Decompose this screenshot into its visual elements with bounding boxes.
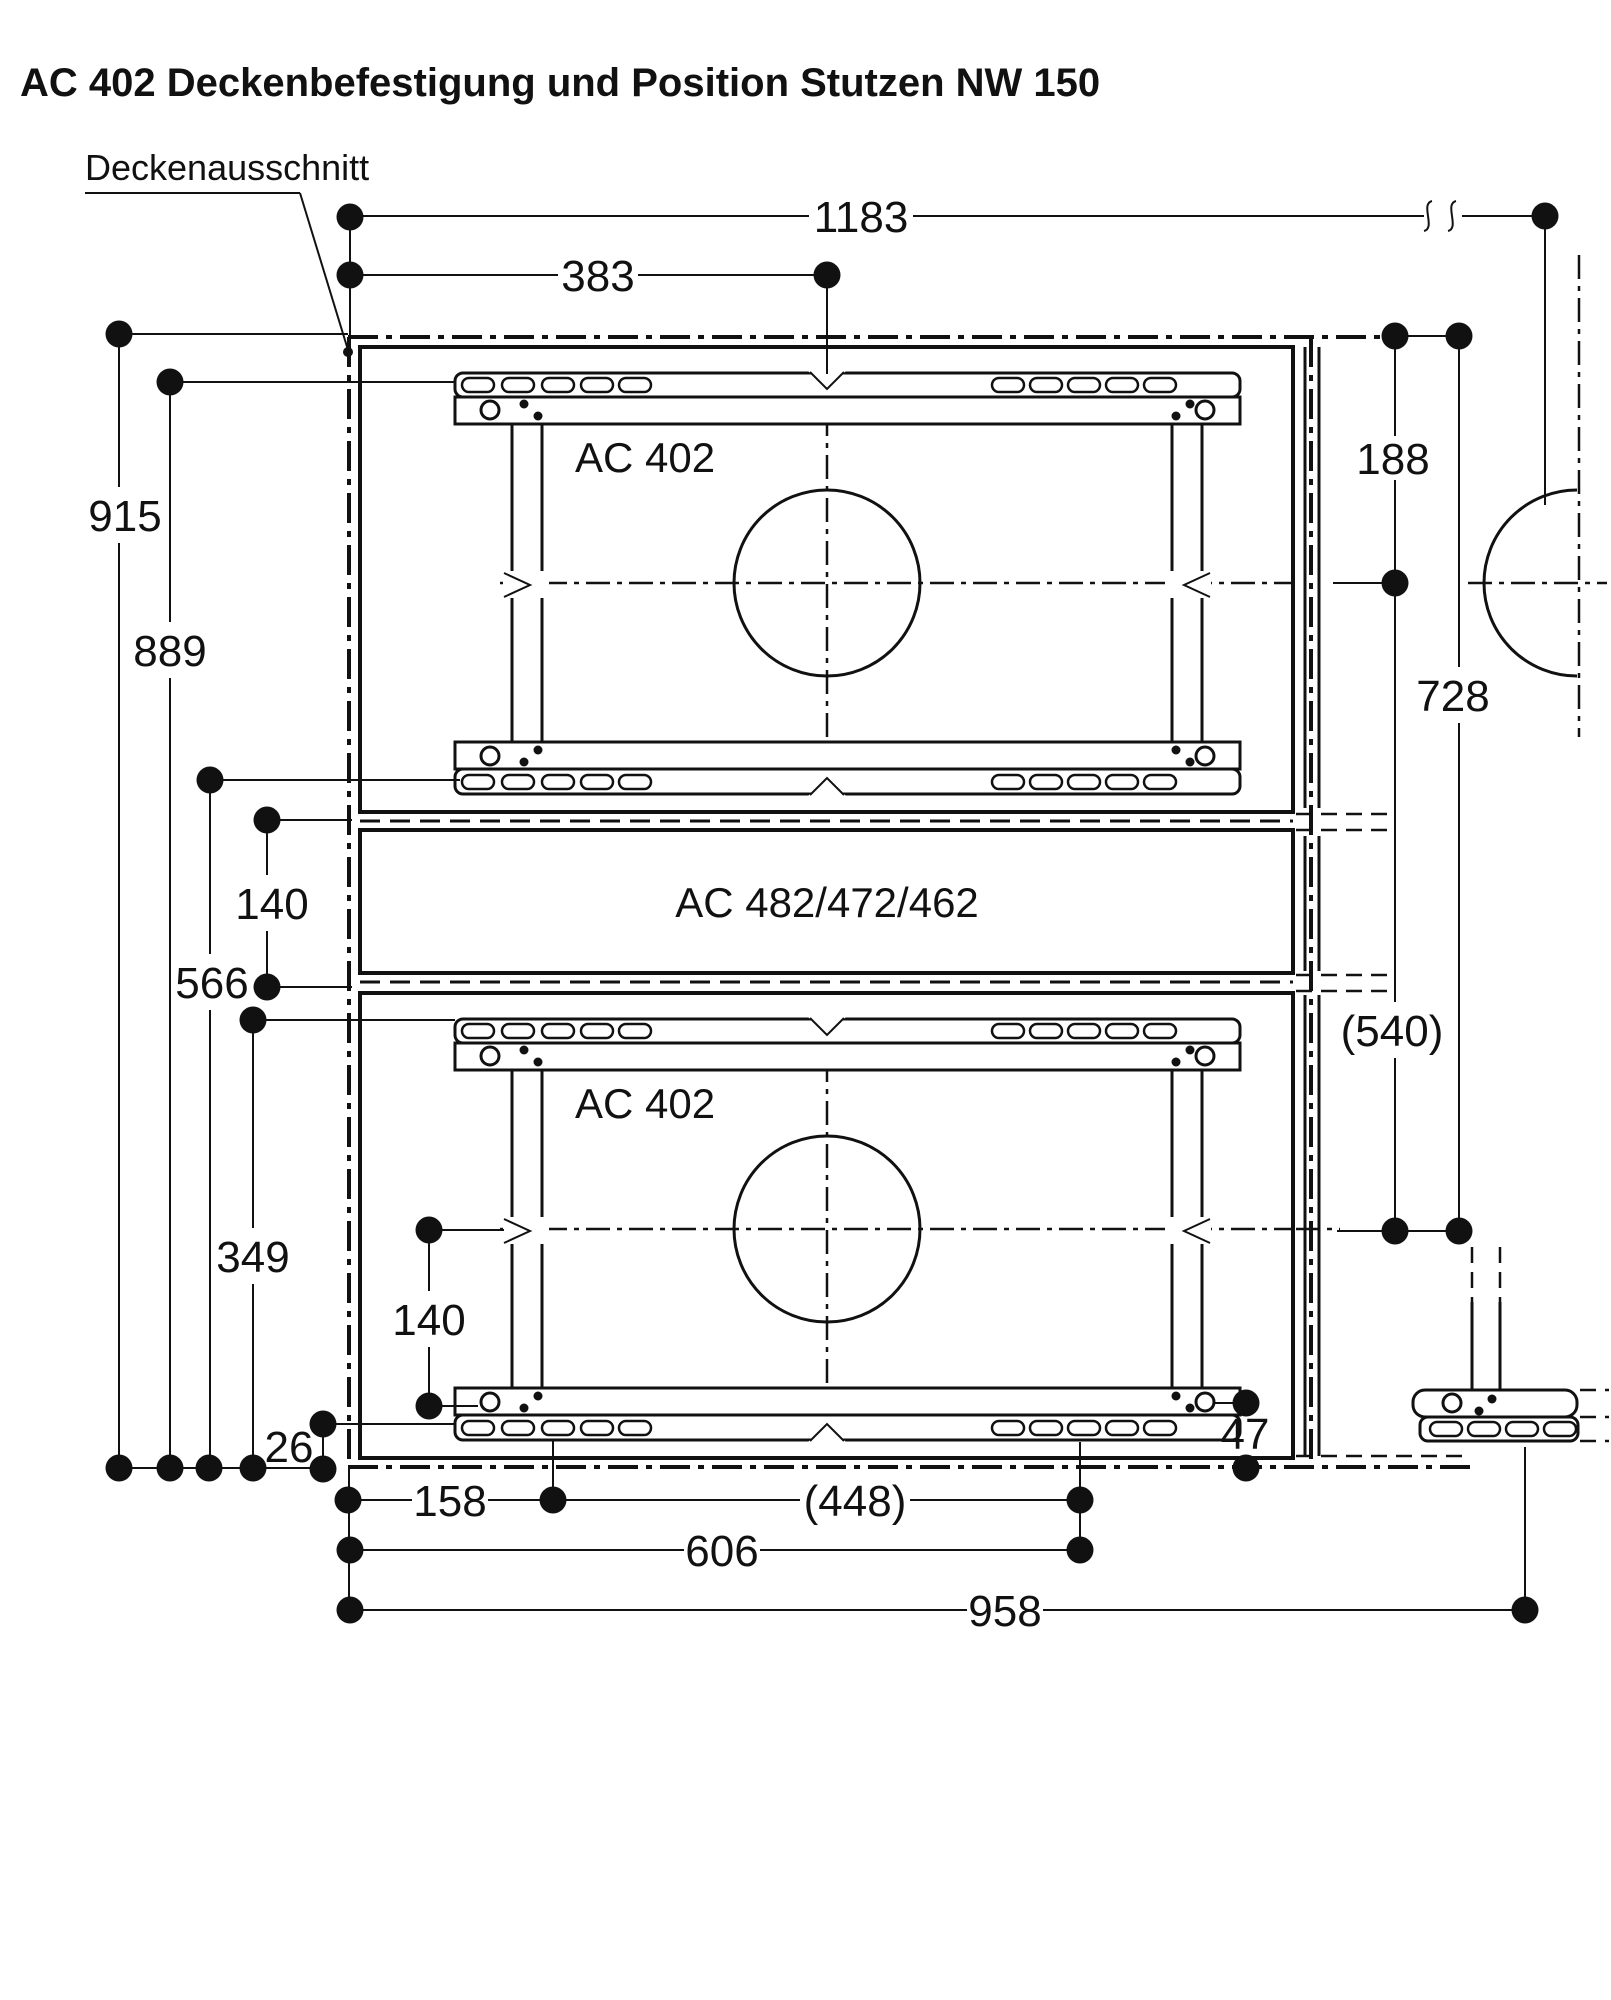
dim-349-label: 349 <box>216 1233 289 1282</box>
dim-140-upper-label: 140 <box>235 880 308 929</box>
ac402-unit-bottom <box>360 993 1293 1458</box>
dim-448-label: (448) <box>804 1477 907 1526</box>
dim-728-label: 728 <box>1416 672 1489 721</box>
dim-383-label: 383 <box>561 252 634 301</box>
dim-606: 606 <box>337 1527 1094 1576</box>
drawing-page: AC 402 Deckenbefestigung und Position St… <box>0 0 1611 2000</box>
dim-1183-label: 1183 <box>814 193 909 242</box>
dim-958: 958 <box>337 1447 1539 1636</box>
dim-958-label: 958 <box>968 1587 1041 1636</box>
unit-top-label: AC 402 <box>575 434 715 481</box>
bottom-right-bracket <box>1413 1247 1609 1441</box>
dim-606-label: 606 <box>685 1527 758 1576</box>
right-strip <box>1296 347 1462 1456</box>
dim-140-upper: 140 <box>235 807 352 1001</box>
dim-889-label: 889 <box>133 627 206 676</box>
unit-bottom-label: AC 402 <box>575 1080 715 1127</box>
dim-540-label: (540) <box>1341 1007 1444 1056</box>
ac402-unit-top <box>360 347 1293 812</box>
dim-188: 188 <box>1333 323 1459 597</box>
page-title: AC 402 Deckenbefestigung und Position St… <box>20 61 1100 105</box>
dim-566-label: 566 <box>175 959 248 1008</box>
dim-26-label: 26 <box>265 1423 314 1472</box>
dim-566: 566 <box>175 767 460 1482</box>
dim-47-label: 47 <box>1221 1410 1270 1459</box>
dim-140-lower-label: 140 <box>392 1296 465 1345</box>
dim-158: 158 <box>335 1441 567 1526</box>
dim-915-label: 915 <box>88 492 161 541</box>
cutout-label: Deckenausschnitt <box>85 147 369 188</box>
technical-drawing: AC 402 Deckenbefestigung und Position St… <box>0 0 1611 2000</box>
dim-383: 383 <box>337 217 841 374</box>
unit-middle-label: AC 482/472/462 <box>675 879 979 926</box>
dim-158-label: 158 <box>413 1477 486 1526</box>
break-symbol <box>1424 201 1432 231</box>
dim-915: 915 <box>88 321 348 1482</box>
right-duct-position <box>1468 255 1607 737</box>
dim-188-label: 188 <box>1356 435 1429 484</box>
